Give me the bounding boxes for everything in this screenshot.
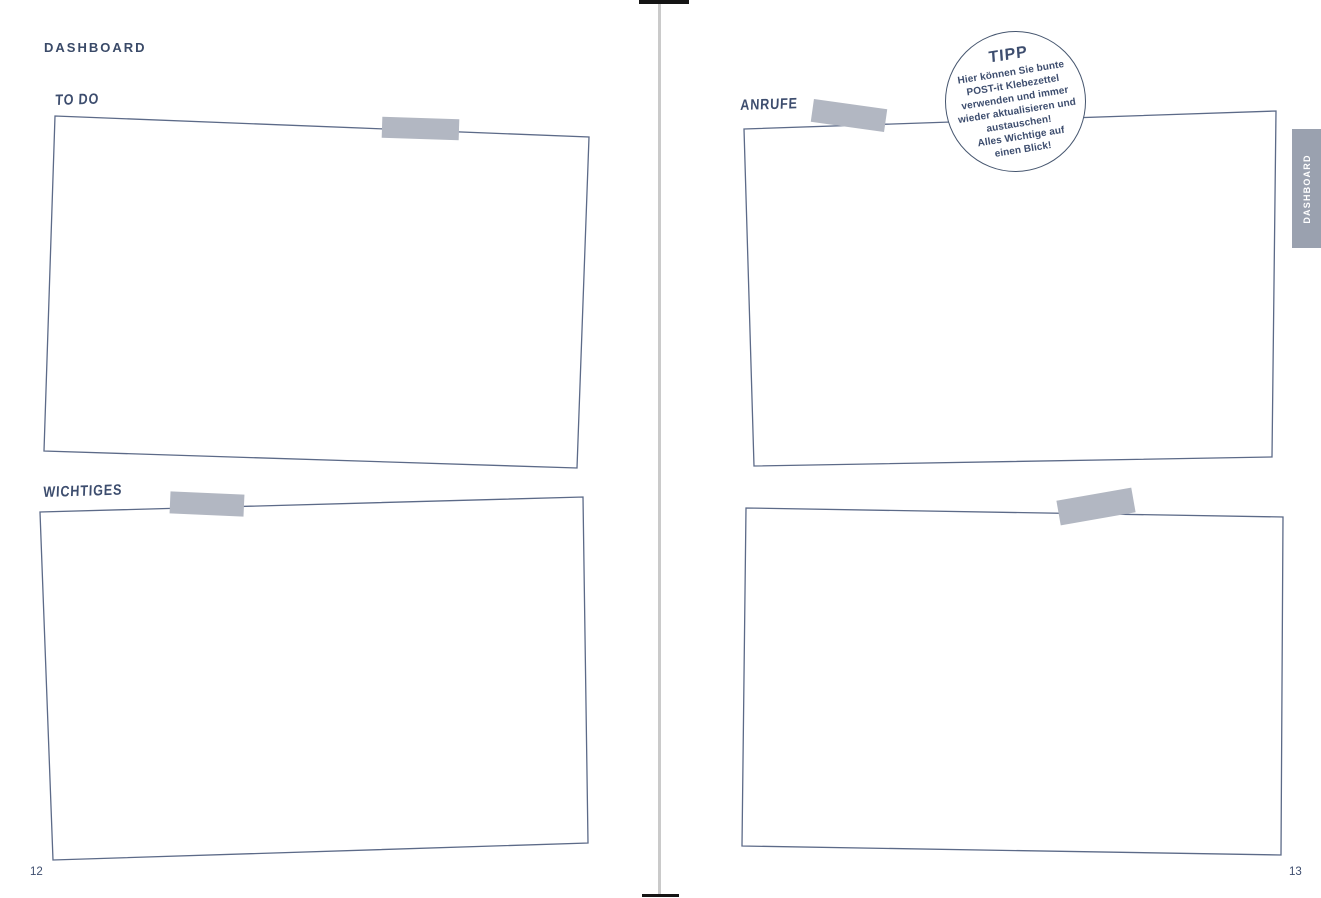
planner-spread: DASHBOARD TO DO WICHTIGES ANRUFE TIPP Hi… [0, 0, 1321, 898]
left-page-number: 12 [30, 866, 43, 878]
note-boxes-layer [0, 0, 1321, 898]
tip-bubble-text: TIPP Hier können Sie bunte POST-it Klebe… [938, 36, 1093, 167]
tape-strip-todo [382, 117, 460, 140]
tape-strip-wichtiges [170, 491, 245, 516]
wichtiges-box[interactable] [40, 497, 588, 860]
crop-mark-top [639, 0, 689, 4]
dashboard-side-tab-label: DASHBOARD [1302, 154, 1312, 223]
todo-box[interactable] [44, 116, 589, 468]
tip-bubble: TIPP Hier können Sie bunte POST-it Klebe… [945, 31, 1086, 172]
crop-mark-bottom [642, 894, 679, 897]
notes-box[interactable] [742, 508, 1283, 855]
anrufe-box-label: ANRUFE [740, 95, 798, 114]
right-page-number: 13 [1289, 866, 1302, 878]
wichtiges-box-label: WICHTIGES [43, 482, 123, 501]
todo-box-label: TO DO [55, 91, 99, 109]
dashboard-side-tab: DASHBOARD [1292, 129, 1321, 248]
page-title: DASHBOARD [44, 40, 147, 55]
